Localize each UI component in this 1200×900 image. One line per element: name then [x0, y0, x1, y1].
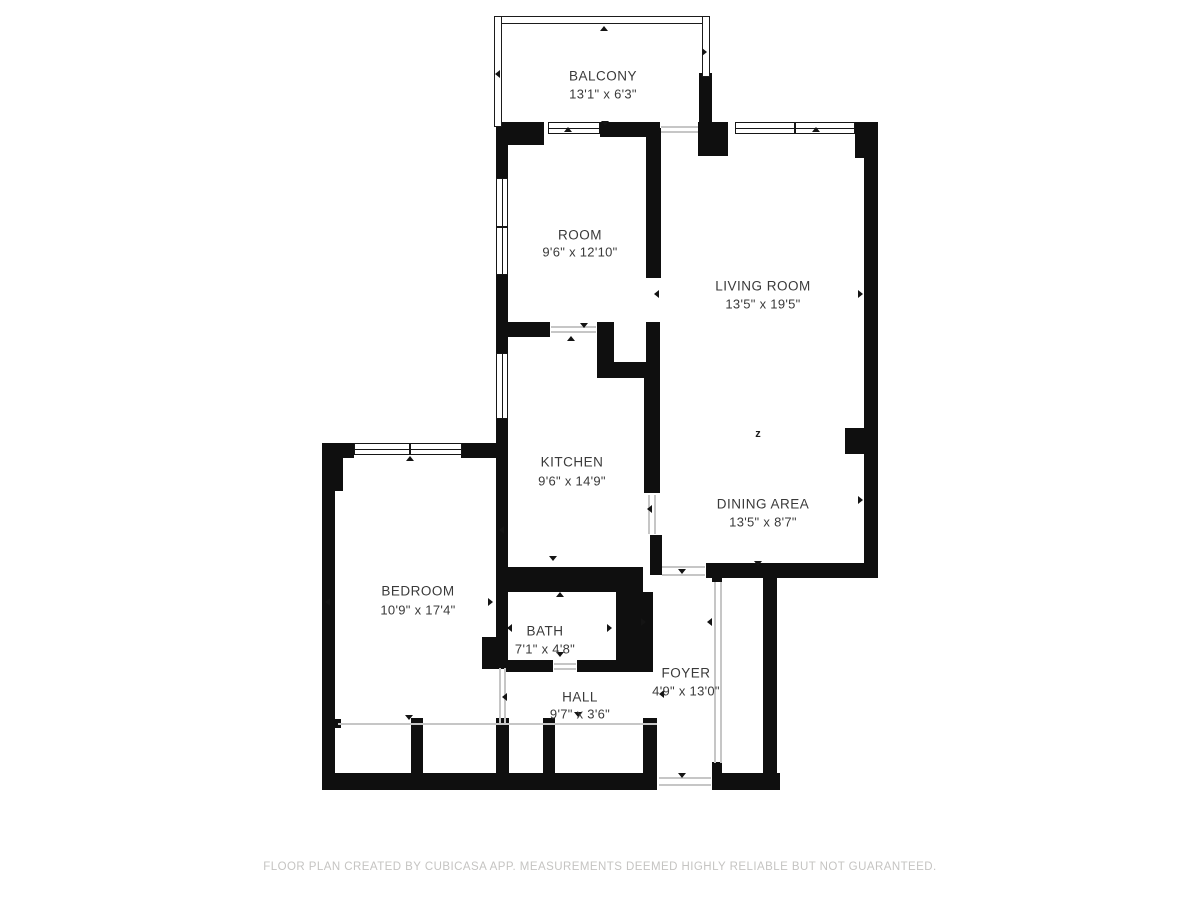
measure-arrow	[488, 598, 493, 606]
window-mullion	[794, 123, 796, 133]
opening-line	[554, 668, 576, 670]
wall-segment	[763, 567, 777, 790]
room-label-bedroom: BEDROOM	[381, 584, 454, 599]
wall-segment	[496, 275, 508, 353]
window	[548, 122, 600, 134]
window	[496, 178, 508, 275]
opening-line	[659, 784, 711, 786]
wall-segment	[644, 378, 660, 493]
room-label-living-room: LIVING ROOM	[715, 279, 811, 294]
room-dims-room: 9'6" x 12'10"	[542, 245, 617, 260]
wall-segment	[504, 660, 553, 672]
opening-line	[499, 668, 501, 723]
footer-disclaimer: FLOOR PLAN CREATED BY CUBICASA APP. MEAS…	[0, 861, 1200, 873]
measure-arrow	[580, 323, 588, 328]
measure-arrow	[499, 526, 504, 534]
wall-segment	[643, 718, 657, 775]
wall-segment	[712, 568, 722, 582]
opening-line	[338, 723, 657, 725]
measure-arrow	[406, 456, 414, 461]
wall-segment	[322, 443, 335, 790]
window-pane-line	[355, 449, 461, 450]
wall-segment	[496, 122, 508, 180]
window	[354, 443, 462, 455]
measure-arrow	[405, 715, 413, 720]
window-mullion	[409, 444, 411, 454]
wall-segment	[543, 718, 555, 775]
balcony-railing	[494, 16, 710, 24]
measure-arrow	[812, 127, 820, 132]
window	[735, 122, 855, 134]
wall-segment	[864, 122, 878, 578]
window-pane-line	[502, 354, 503, 418]
wall-segment	[650, 535, 662, 575]
wall-segment	[322, 773, 657, 790]
room-label-foyer: FOYER	[661, 666, 710, 681]
measure-arrow	[556, 592, 564, 597]
room-label-dining-area: DINING AREA	[717, 497, 810, 512]
opening-line	[551, 331, 596, 333]
measure-arrow	[502, 693, 507, 701]
measure-arrow	[654, 290, 659, 298]
opening-line	[720, 582, 722, 763]
opening-line	[662, 566, 705, 568]
opening-line	[714, 582, 716, 763]
measure-arrow	[702, 48, 707, 56]
wall-segment	[496, 718, 509, 775]
measure-arrow	[678, 569, 686, 574]
measure-arrow	[325, 598, 330, 606]
room-dims-bath: 7'1" x 4'8"	[515, 642, 575, 657]
window	[496, 353, 508, 419]
wall-segment	[597, 362, 660, 378]
opening-line	[554, 663, 576, 665]
wall-segment	[461, 443, 508, 458]
room-dims-living-room: 13'5" x 19'5"	[725, 297, 800, 312]
measure-arrow	[707, 618, 712, 626]
wall-segment	[646, 128, 661, 278]
opening-line	[662, 574, 705, 576]
measure-arrow	[507, 624, 512, 632]
opening-line	[648, 495, 650, 534]
measure-arrow	[858, 496, 863, 504]
measure-arrow	[647, 505, 652, 513]
room-label-kitchen: KITCHEN	[541, 455, 604, 470]
wall-segment	[322, 455, 343, 491]
opening-line	[654, 495, 656, 534]
wall-segment	[646, 322, 660, 364]
measure-arrow	[601, 121, 609, 126]
wall-segment	[616, 592, 653, 666]
room-label-balcony: BALCONY	[569, 69, 637, 84]
wall-segment	[411, 718, 423, 775]
wall-segment	[482, 637, 508, 669]
measure-arrow	[600, 26, 608, 31]
measure-arrow	[754, 561, 762, 566]
opening-line	[661, 131, 698, 133]
window-pane-line	[549, 128, 599, 129]
room-dims-dining-area: 13'5" x 8'7"	[729, 515, 797, 530]
room-dims-balcony: 13'1" x 6'3"	[569, 87, 637, 102]
wall-segment	[845, 428, 865, 454]
measure-arrow	[678, 773, 686, 778]
room-label-hall: HALL	[562, 690, 598, 705]
room-dims-foyer: 4'9" x 13'0"	[652, 684, 720, 699]
measure-arrow	[641, 618, 646, 626]
measure-arrow	[607, 624, 612, 632]
window-mullion	[497, 226, 507, 228]
measure-arrow	[567, 336, 575, 341]
fixture-symbol: z	[755, 428, 761, 440]
wall-segment	[496, 567, 643, 592]
opening-line	[661, 126, 698, 128]
room-dims-bedroom: 10'9" x 17'4"	[380, 603, 455, 618]
room-dims-hall: 9'7" x 3'6"	[550, 707, 610, 722]
room-label-bath: BATH	[526, 624, 563, 639]
wall-segment	[706, 563, 878, 578]
opening-line	[551, 326, 596, 328]
room-label-room: ROOM	[558, 228, 602, 243]
wall-segment	[504, 322, 550, 337]
floor-plan-canvas: FLOOR PLAN CREATED BY CUBICASA APP. MEAS…	[0, 0, 1200, 900]
wall-segment	[699, 73, 712, 125]
wall-segment	[698, 122, 728, 156]
measure-arrow	[495, 70, 500, 78]
measure-arrow	[858, 290, 863, 298]
wall-segment	[577, 660, 653, 672]
room-dims-kitchen: 9'6" x 14'9"	[538, 474, 606, 489]
balcony-railing	[702, 16, 710, 77]
measure-arrow	[549, 556, 557, 561]
measure-arrow	[564, 127, 572, 132]
wall-segment	[712, 762, 722, 775]
